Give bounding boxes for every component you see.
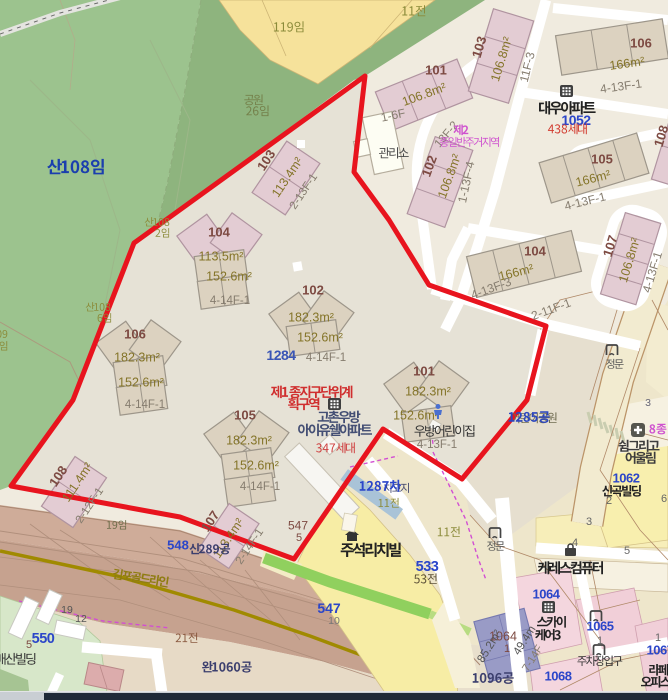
svg-text:106: 106 [630, 36, 652, 51]
svg-text:547: 547 [288, 518, 308, 532]
svg-text:1068: 1068 [545, 669, 572, 684]
svg-text:4-14F-1: 4-14F-1 [306, 352, 346, 364]
svg-text:547: 547 [317, 600, 341, 616]
svg-text:182.3m²: 182.3m² [405, 385, 451, 399]
svg-text:152.6m²: 152.6m² [206, 270, 252, 284]
svg-text:102: 102 [302, 283, 324, 298]
svg-text:152.6m²: 152.6m² [297, 331, 343, 345]
svg-text:1: 1 [655, 632, 661, 644]
svg-text:12: 12 [75, 613, 87, 625]
svg-text:182.3m²: 182.3m² [226, 434, 272, 448]
svg-text:113.5m²: 113.5m² [199, 250, 244, 264]
svg-text:3: 3 [586, 516, 592, 528]
svg-text:4: 4 [572, 537, 578, 549]
svg-text:182.3m²: 182.3m² [114, 351, 160, 365]
svg-text:533: 533 [416, 559, 439, 575]
svg-text:550: 550 [32, 631, 55, 647]
svg-text:6: 6 [661, 493, 667, 505]
svg-text:10: 10 [328, 615, 340, 627]
svg-text:105: 105 [234, 408, 256, 423]
svg-text:5: 5 [296, 532, 302, 544]
svg-text:1064: 1064 [533, 587, 561, 602]
svg-text:152.6m²: 152.6m² [233, 459, 279, 473]
svg-text:19: 19 [61, 604, 73, 616]
svg-text:104: 104 [524, 244, 546, 259]
svg-text:1065: 1065 [587, 619, 614, 634]
svg-text:548: 548 [167, 538, 189, 553]
svg-text:3: 3 [645, 397, 651, 409]
svg-text:152.6m²: 152.6m² [118, 376, 164, 390]
svg-text:1062: 1062 [613, 471, 640, 486]
svg-text:182.3m²: 182.3m² [288, 311, 334, 325]
svg-text:1067: 1067 [647, 643, 668, 658]
svg-text:4-13F-1: 4-13F-1 [417, 439, 457, 451]
svg-text:1: 1 [597, 635, 603, 647]
svg-text:101: 101 [425, 63, 447, 78]
svg-text:4-14F-1: 4-14F-1 [210, 295, 250, 307]
svg-text:5: 5 [26, 639, 32, 651]
svg-text:1: 1 [504, 643, 510, 655]
svg-text:106: 106 [124, 327, 146, 342]
svg-text:2: 2 [606, 495, 612, 507]
svg-text:1284: 1284 [266, 347, 296, 363]
svg-text:4-14F-1: 4-14F-1 [125, 399, 165, 411]
svg-text:5: 5 [624, 545, 630, 557]
svg-text:105: 105 [591, 152, 613, 167]
svg-text:152.6m²: 152.6m² [393, 409, 439, 423]
svg-text:104: 104 [208, 225, 230, 240]
svg-text:101: 101 [413, 364, 435, 379]
svg-text:4-14F-1: 4-14F-1 [240, 481, 280, 493]
